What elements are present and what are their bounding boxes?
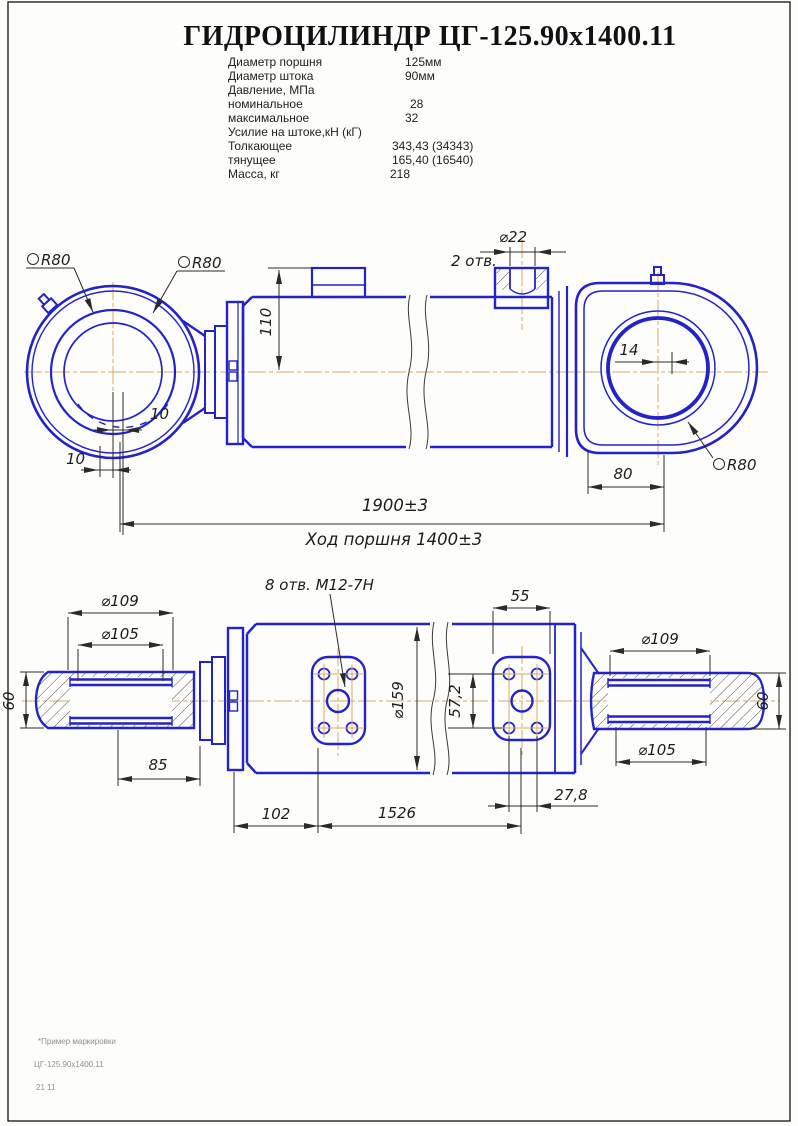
dim-dia109-label: ⌀109 [641,630,679,648]
spec-label-3: номинальное [228,97,303,111]
spec-label-6: Толкающее [228,139,292,153]
spec-label-7: тянущее [228,153,276,167]
marking-note-code: 21 11 [36,1083,56,1092]
section-view: ⌀109 ⌀105 60 85 8 отв. М12-7Н ⌀159 [0,576,786,834]
dim-dia105-label: ⌀105 [101,625,139,643]
sphere-symbol [714,459,725,470]
dim-80-label: 80 [613,465,632,483]
spec-value-6: 343,43 (34343) [392,139,473,153]
hydraulic-cylinder-drawing: ГИДРОЦИЛИНДР ЦГ-125.90x1400.11 Диаметр п… [0,0,798,1126]
spec-value-4: 32 [405,111,419,125]
dim-dia109-label: ⌀109 [101,592,139,610]
spec-label-8: Масса, кг [228,167,280,181]
dim-278-label: 27,8 [554,786,587,804]
marking-note-title: *Пример маркировки [38,1037,116,1046]
spec-label-1: Диаметр штока [228,69,314,83]
dim-57-label: 57,2 [446,684,464,717]
hatch-area [497,269,510,290]
side-view-dimensions: 110 ⌀22 2 отв. 14 10 10 [26,228,757,549]
spec-label-0: Диаметр поршня [228,55,322,69]
sphere-symbol [28,254,39,265]
dim-8otv-label: 8 отв. М12-7Н [265,576,374,594]
break-line [431,622,436,775]
spec-value-1: 90мм [405,69,435,83]
rod-section-left [36,672,194,728]
spec-value-0: 125мм [405,55,442,69]
dim-1900-label: 1900±3 [362,496,428,515]
dim-stroke-label: Ход поршня 1400±3 [305,530,483,549]
dim-dia159-label: ⌀159 [389,681,407,719]
barrel-section [247,622,575,775]
dim-14-label: 14 [619,341,638,359]
spec-label-2: Давление, МПа [228,83,315,97]
dim-60-label: 60 [0,691,18,710]
marking-note-model: ЦГ-125.90х1400.11 [34,1060,104,1069]
dim-2otv-label: 2 отв. [451,252,497,270]
mounting-boss [312,268,365,297]
drawing-sheet: ГИДРОЦИЛИНДР ЦГ-125.90x1400.11 Диаметр п… [0,0,798,1126]
dim-r80-label: R80 [41,251,71,269]
spec-label-5: Усилие на штоке,кН (кГ) [228,125,362,139]
dim-102-label: 102 [262,805,291,823]
dim-60-label: 60 [754,691,772,710]
spec-value-8: 218 [390,167,410,181]
rod-gland-section [200,628,243,770]
spec-value-3: 28 [410,97,424,111]
dim-110-label: 110 [257,308,275,337]
dim-r80-label: R80 [192,254,222,272]
dim-55-label: 55 [510,587,529,605]
dim-1526-label: 1526 [378,804,416,822]
spec-label-4: максимальное [228,111,309,125]
drawing-title: ГИДРОЦИЛИНДР ЦГ-125.90x1400.11 [183,21,676,52]
spec-table: Диаметр поршня 125мм Диаметр штока 90мм … [228,55,473,181]
sphere-symbol [179,257,190,268]
dim-10-label: 10 [66,450,85,468]
spec-value-7: 165,40 (16540) [392,153,473,167]
dim-r80-label: R80 [727,456,757,474]
dim-10-label: 10 [150,405,169,423]
side-view: 110 ⌀22 2 отв. 14 10 10 [24,228,768,549]
dim-dia22-label: ⌀22 [499,228,527,246]
hatch-area [536,269,547,290]
marking-note: *Пример маркировки ЦГ-125.90х1400.11 21 … [34,1037,116,1092]
rod-gland [205,302,243,444]
dim-85-label: 85 [148,756,167,774]
dim-dia105-label: ⌀105 [638,741,676,759]
